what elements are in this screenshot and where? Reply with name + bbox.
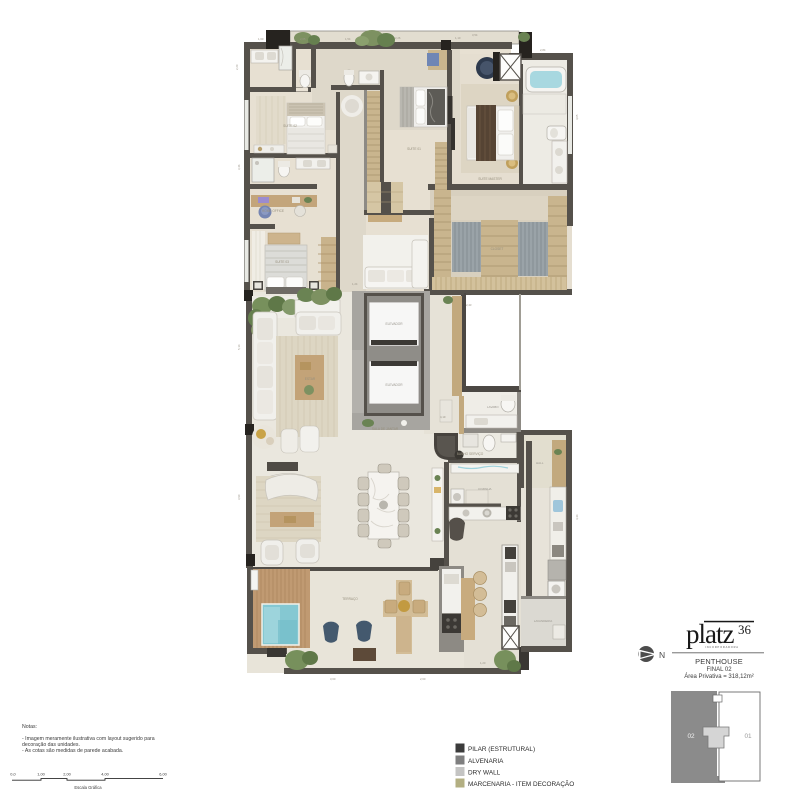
svg-text:3,60: 3,60: [330, 677, 336, 681]
svg-text:36: 36: [738, 622, 752, 637]
svg-text:2,43: 2,43: [466, 303, 472, 307]
svg-text:ESTAR: ESTAR: [305, 377, 316, 381]
svg-text:2,60: 2,60: [420, 677, 426, 681]
svg-text:SUITE 01: SUITE 01: [407, 147, 421, 151]
svg-text:6,00: 6,00: [159, 772, 167, 777]
svg-text:ALVENARIA: ALVENARIA: [468, 758, 504, 765]
svg-text:ELEVADOR: ELEVADOR: [385, 383, 403, 387]
svg-text:1,24: 1,24: [352, 282, 358, 286]
svg-text:SALA DE JANTAR: SALA DE JANTAR: [372, 427, 399, 431]
svg-text:SUITE 03: SUITE 03: [275, 260, 289, 264]
svg-text:2,20: 2,20: [235, 64, 239, 70]
svg-text:Escala Gráfica: Escala Gráfica: [74, 785, 102, 790]
svg-text:Área Privativa = 318,12m²: Área Privativa = 318,12m²: [684, 673, 754, 680]
svg-text:TERRAÇO: TERRAÇO: [342, 597, 358, 601]
svg-text:SUITE MASTER: SUITE MASTER: [478, 177, 502, 181]
svg-text:1,60: 1,60: [258, 37, 264, 41]
svg-text:1,54: 1,54: [345, 37, 351, 41]
svg-text:ELEVADOR: ELEVADOR: [385, 322, 403, 326]
svg-text:HALL: HALL: [536, 461, 544, 465]
svg-text:platz: platz: [686, 619, 734, 649]
svg-text:PENTHOUSE: PENTHOUSE: [695, 657, 743, 666]
svg-text:COZINHA: COZINHA: [478, 487, 492, 491]
svg-text:1,10: 1,10: [455, 36, 461, 40]
svg-text:CLOSET: CLOSET: [491, 247, 504, 251]
svg-text:- As cotas são medidas de pare: - As cotas são medidas de parede acabada…: [22, 748, 123, 754]
svg-text:02: 02: [687, 733, 695, 740]
svg-text:4,00: 4,00: [101, 772, 109, 777]
svg-text:0,0: 0,0: [10, 772, 16, 777]
svg-text:HOME OFFICE: HOME OFFICE: [262, 209, 284, 213]
svg-text:SUITE 02: SUITE 02: [283, 124, 297, 128]
svg-text:01: 01: [744, 733, 752, 740]
svg-text:5,14: 5,14: [237, 344, 241, 350]
svg-text:3,90: 3,90: [237, 494, 241, 500]
svg-text:MARCENARIA - ITEM DECORAÇÃO: MARCENARIA - ITEM DECORAÇÃO: [468, 779, 574, 788]
svg-text:2,84: 2,84: [540, 48, 546, 52]
svg-text:1,20: 1,20: [480, 661, 486, 665]
svg-text:BANHO SERVIÇO: BANHO SERVIÇO: [457, 452, 484, 456]
svg-text:DRY WALL: DRY WALL: [468, 770, 501, 777]
svg-text:4,05: 4,05: [575, 114, 579, 120]
svg-text:4,44: 4,44: [575, 514, 579, 520]
svg-text:PILAR (ESTRUTURAL): PILAR (ESTRUTURAL): [468, 746, 535, 753]
svg-text:N: N: [659, 650, 665, 660]
svg-text:3,46: 3,46: [237, 164, 241, 170]
svg-text:4,19: 4,19: [440, 415, 446, 419]
svg-text:2,05: 2,05: [300, 37, 306, 41]
svg-text:2,00: 2,00: [63, 772, 71, 777]
svg-text:Notas:: Notas:: [22, 724, 37, 730]
svg-text:2,26: 2,26: [395, 36, 401, 40]
svg-text:LAVANDERIA: LAVANDERIA: [534, 619, 553, 623]
svg-text:FINAL 02: FINAL 02: [706, 667, 732, 673]
svg-text:LAVABO: LAVABO: [487, 405, 499, 409]
svg-text:1,00: 1,00: [37, 772, 45, 777]
svg-text:3,54: 3,54: [472, 33, 478, 37]
svg-text:INCORPORADORA: INCORPORADORA: [705, 645, 739, 649]
